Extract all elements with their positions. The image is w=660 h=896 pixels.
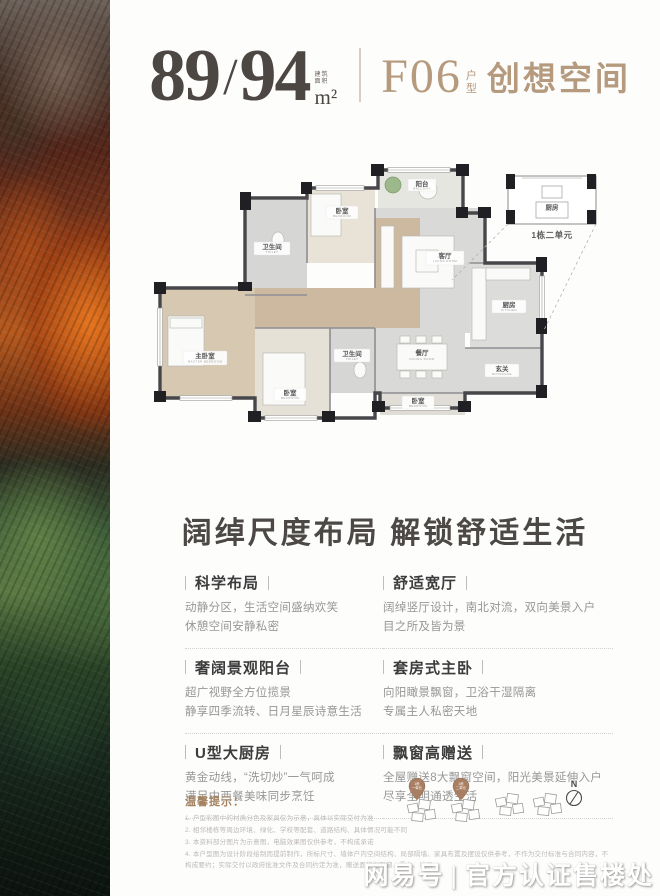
pin-label-2b: 二单元 [456, 785, 467, 790]
feature-title: 飘窗高赠送 [393, 742, 473, 763]
feature-line: 向阳瞰景飘窗，卫浴干湿隔离 [383, 684, 607, 703]
title-bar-left [383, 745, 384, 759]
svg-text:BEDROOM: BEDROOM [281, 396, 299, 400]
dining-chair [416, 336, 426, 343]
svg-text:MASTER BEDROOM: MASTER BEDROOM [188, 359, 223, 363]
title-bar-left [383, 660, 384, 674]
unit-type-label-1: 户 [466, 70, 477, 83]
title-bar-right [280, 745, 281, 759]
svg-text:DINING ROOM: DINING ROOM [409, 357, 434, 361]
label-living: 客厅 LIVING ROOM [426, 251, 464, 265]
header-divider [359, 48, 361, 102]
compass-icon: N [567, 779, 582, 806]
unit-type-name: 创想空间 [487, 64, 631, 97]
watermark-separator: | [450, 862, 459, 890]
dining-chair [416, 371, 426, 378]
label-bedroom-top: 卧室 BEDROOM [326, 206, 358, 219]
svg-text:BALCONY: BALCONY [413, 187, 430, 191]
feature-line: 阔绰竖厅设计，南北对流，双向美景入户 [383, 599, 607, 618]
feature-line: 动静分区，生活空间盛纳欢笑 [185, 599, 377, 618]
feature-title: 科学布局 [195, 572, 259, 593]
area-slash: / [223, 52, 237, 104]
feature-comfort-hall: 舒适宽厅 阔绰竖厅设计，南北对流，双向美景入户 目之所及皆为景 [383, 564, 613, 649]
svg-text:餐厅: 餐厅 [415, 348, 430, 357]
svg-text:KITCHEN: KITCHEN [501, 308, 517, 312]
poster-page: 89 / 94 建筑 面积 m² F06 户 型 创想空间 [0, 0, 660, 896]
inset-room-label: 厨房 [546, 203, 560, 212]
site-plan-svg: 1栋 一单元 1栋 二单元 [400, 776, 590, 826]
feature-line: 静享四季流转、日月星辰诗意生活 [185, 703, 377, 722]
title-bar-right [268, 576, 269, 590]
area-unit: m² [315, 87, 338, 108]
sofa [381, 226, 394, 288]
label-master: 主卧室 MASTER BEDROOM [183, 351, 227, 365]
unit-type-label: 户 型 [466, 70, 477, 95]
feature-balcony-view: 奢阔景观阳台 超广视野全方位揽景 静享四季流转、日月星辰诗意生活 [185, 649, 383, 734]
building-cluster-4 [533, 793, 561, 815]
kitchen-counter-2 [486, 268, 530, 280]
svg-text:TOILET: TOILET [346, 357, 359, 361]
pin-label-1b: 一单元 [412, 785, 423, 790]
title-bar-right [482, 660, 483, 674]
dining-chair [400, 371, 410, 378]
watermark-label: 官方认证售楼处 [465, 862, 654, 890]
title-bar-left [185, 745, 186, 759]
svg-text:ENTRANCE: ENTRANCE [492, 372, 512, 376]
tips-line: 2. 相邻楼栋等周边环境、绿化、学校等配套、道路结构、具体情况可能不同 [185, 825, 485, 836]
svg-text:BEDROOM: BEDROOM [333, 214, 351, 218]
feature-title: 套房式主卧 [393, 657, 473, 678]
area-unit-stack: 建筑 面积 m² [315, 72, 338, 107]
title-bar-left [185, 660, 186, 674]
bed-master-pillow [170, 318, 202, 328]
svg-text:TOILET: TOILET [266, 250, 279, 254]
feature-title: 奢阔景观阳台 [195, 657, 291, 678]
building-cluster-3 [495, 793, 523, 815]
floorplan-svg: 阳台 BALCONY 卧室 BEDROOM 卫生间 TOILET 客厅 LIVI… [150, 158, 612, 466]
feature-line: 专属主人私密天地 [383, 703, 607, 722]
dining-chair [400, 336, 410, 343]
svg-text:LIVING ROOM: LIVING ROOM [433, 259, 458, 263]
building-cluster-1: 1栋 一单元 [407, 778, 435, 822]
inset-caption: 1栋二单元 [531, 230, 572, 240]
unit-type-code: F06 [381, 55, 462, 98]
feature-line: 超广视野全方位揽景 [185, 684, 377, 703]
watermark: 网易号|官方认证售楼处 [363, 856, 654, 892]
balcony-plant [385, 177, 401, 193]
floorplan: 阳台 BALCONY 卧室 BEDROOM 卫生间 TOILET 客厅 LIVI… [150, 158, 612, 466]
title-bar-right [466, 576, 467, 590]
svg-text:N: N [571, 779, 578, 789]
type-group: F06 户 型 创想空间 [381, 55, 631, 98]
unit-type-label-2: 型 [466, 83, 477, 96]
watermark-brand: 网易号 [363, 862, 444, 890]
tips-line: 3. 本资料部分图片为示意图，电脑效果图仅供参考，不构成承诺 [185, 837, 485, 848]
area-alt: 94 [240, 44, 310, 109]
area-main: 89 [149, 44, 219, 109]
header: 89 / 94 建筑 面积 m² F06 户 型 创想空间 [130, 34, 650, 120]
toilet-fixture-lower [354, 362, 366, 378]
svg-text:BEDROOM: BEDROOM [409, 404, 427, 408]
dining-chair [432, 336, 442, 343]
title-bar-left [383, 576, 384, 590]
label-bedroom-bottom: 卧室 BEDROOM [274, 388, 306, 401]
label-entry: 玄关 ENTRANCE [485, 364, 519, 377]
feature-title: U型大厨房 [195, 742, 271, 763]
art-strip-image [0, 0, 110, 896]
label-balcony: 阳台 BALCONY [408, 179, 436, 191]
section-title: 阔绰尺度布局 解锁舒适生活 [110, 508, 660, 552]
label-toilet-lower: 卫生间 TOILET [334, 349, 370, 362]
feature-science-layout: 科学布局 动静分区，生活空间盛纳欢笑 休憩空间安静私密 [185, 564, 383, 649]
dining-chair [432, 371, 442, 378]
area-group: 89 / 94 建筑 面积 m² [149, 44, 337, 109]
feature-line: 黄金动线，“洗切炒”一气呵成 [185, 769, 377, 788]
label-toilet-upper: 卫生间 TOILET [254, 242, 290, 255]
building-cluster-2: 1栋 二单元 [451, 778, 479, 822]
feature-suite-master: 套房式主卧 向阳瞰景飘窗，卫浴干湿隔离 专属主人私密天地 [383, 649, 613, 734]
feature-line: 目之所及皆为景 [383, 618, 607, 637]
label-bedroom-strip: 卧室 BEDROOM [402, 396, 434, 409]
feature-title: 舒适宽厅 [393, 572, 457, 593]
label-kitchen: 厨房 KITCHEN [492, 300, 526, 313]
site-plan-row: 1栋 一单元 1栋 二单元 [400, 776, 590, 826]
title-bar-left [185, 576, 186, 590]
feature-line: 休憩空间安静私密 [185, 618, 377, 637]
title-bar-right [300, 660, 301, 674]
kitchen-counter [472, 268, 486, 340]
title-bar-right [482, 745, 483, 759]
